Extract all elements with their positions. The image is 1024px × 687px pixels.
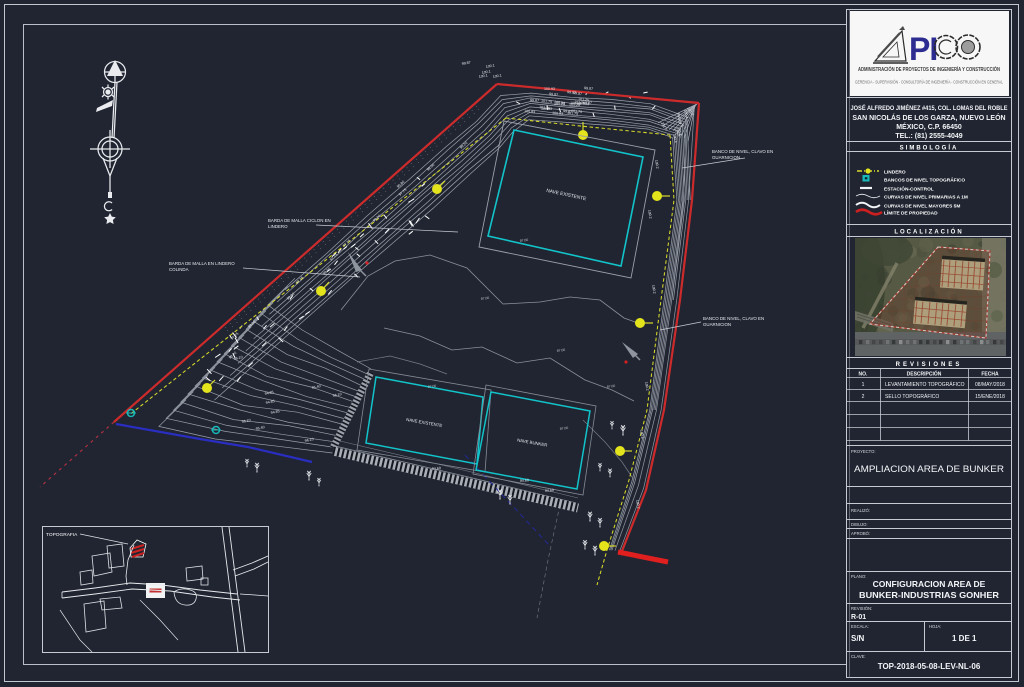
svg-text:COLINDA: COLINDA — [169, 267, 189, 272]
svg-text:CLAVE:: CLAVE: — [851, 654, 866, 659]
svg-text:MÉXICO, C.P. 66450: MÉXICO, C.P. 66450 — [896, 122, 962, 131]
svg-text:GERENCIA - SUPERVISIÓN - CONSU: GERENCIA - SUPERVISIÓN - CONSULTORÍA DE … — [855, 80, 1004, 85]
svg-text:BANCO DE NIVEL, CLAVO EN: BANCO DE NIVEL, CLAVO EN — [712, 149, 773, 154]
svg-text:1 DE 1: 1 DE 1 — [952, 634, 977, 643]
svg-text:AMPLIACION AREA DE BUNKER: AMPLIACION AREA DE BUNKER — [854, 464, 1004, 475]
svg-text:GUARNICION: GUARNICION — [703, 322, 731, 327]
svg-text:JOSÉ ALFREDO JIMÉNEZ #415, COL: JOSÉ ALFREDO JIMÉNEZ #415, COL. LOMAS DE… — [851, 103, 1008, 112]
svg-text:PI: PI — [909, 31, 937, 67]
svg-text:SIMBOLOGÍA: SIMBOLOGÍA — [900, 144, 959, 152]
svg-text:S/N: S/N — [851, 634, 865, 643]
svg-text:CURVAS DE NIVEL MAYORES 5M: CURVAS DE NIVEL MAYORES 5M — [884, 204, 960, 210]
svg-text:100.93: 100.93 — [544, 87, 555, 91]
svg-text:REVISIONES: REVISIONES — [896, 362, 963, 368]
svg-text:94.60: 94.60 — [432, 466, 441, 471]
svg-text:ADMINISTRACIÓN DE PROYECTOS DE: ADMINISTRACIÓN DE PROYECTOS DE INGENIERÍ… — [858, 65, 1000, 73]
svg-text:BARDA DE MALLA EN LINDERO: BARDA DE MALLA EN LINDERO — [169, 261, 235, 266]
svg-text:R-01: R-01 — [851, 614, 866, 621]
svg-text:LINDERO: LINDERO — [884, 170, 906, 176]
svg-text:TOP-2018-05-08-LEV-NL-06: TOP-2018-05-08-LEV-NL-06 — [878, 662, 981, 671]
svg-text:BANCO DE NIVEL, CLAVO EN: BANCO DE NIVEL, CLAVO EN — [703, 316, 764, 321]
svg-text:94.60: 94.60 — [520, 478, 529, 483]
svg-text:101.25: 101.25 — [554, 102, 565, 106]
svg-text:REALIZÓ:: REALIZÓ: — [851, 508, 870, 513]
svg-text:ESCALA:: ESCALA: — [851, 624, 869, 629]
svg-text:100.93: 100.93 — [541, 107, 552, 111]
svg-text:CONFIGURACION AREA DE: CONFIGURACION AREA DE — [873, 579, 986, 589]
svg-text:BUNKER-INDUSTRIAS GONHER: BUNKER-INDUSTRIAS GONHER — [859, 590, 999, 600]
svg-text:99.87: 99.87 — [530, 98, 539, 103]
svg-text:15/ENE/2018: 15/ENE/2018 — [975, 394, 1005, 400]
svg-text:NO.: NO. — [859, 372, 869, 378]
svg-text:REVISIÓN:: REVISIÓN: — [851, 606, 872, 611]
svg-text:FECHA: FECHA — [981, 372, 999, 378]
svg-text:CURVAS DE NIVEL PRIMARIAS A 1M: CURVAS DE NIVEL PRIMARIAS A 1M — [884, 195, 968, 201]
svg-text:TEL.: (81) 2555-4049: TEL.: (81) 2555-4049 — [895, 133, 962, 140]
svg-text:DESCRIPCIÓN: DESCRIPCIÓN — [907, 370, 942, 378]
svg-text:LINDERO: LINDERO — [268, 224, 288, 229]
svg-text:LOCALIZACIÓN: LOCALIZACIÓN — [894, 228, 963, 236]
svg-text:BARDA DE MALLA CICLON EN: BARDA DE MALLA CICLON EN — [268, 218, 331, 223]
svg-text:HOJA:: HOJA: — [929, 624, 941, 629]
svg-text:DIBUJO:: DIBUJO: — [851, 522, 868, 527]
svg-text:TOPOGRAFIA: TOPOGRAFIA — [46, 532, 78, 538]
svg-text:APROBÓ:: APROBÓ: — [851, 531, 870, 536]
svg-text:PLANO:: PLANO: — [851, 574, 866, 579]
svg-text:94.60: 94.60 — [545, 488, 554, 493]
svg-text:GUARNICION: GUARNICION — [712, 155, 740, 160]
svg-text:SAN NICOLÁS DE LOS GARZA, NUEV: SAN NICOLÁS DE LOS GARZA, NUEVO LEÓN — [852, 113, 1005, 122]
svg-text:LEVANTAMIENTO TOPOGRÁFICO: LEVANTAMIENTO TOPOGRÁFICO — [885, 381, 965, 388]
svg-text:08/MAY/2018: 08/MAY/2018 — [975, 382, 1005, 388]
svg-text:PROYECTO:: PROYECTO: — [851, 449, 876, 454]
svg-text:BANCOS DE NIVEL TOPOGRÁFICO: BANCOS DE NIVEL TOPOGRÁFICO — [884, 177, 965, 184]
svg-text:1: 1 — [862, 382, 865, 388]
svg-text:2: 2 — [862, 394, 865, 400]
svg-text:SELLO TOPOGRÁFICO: SELLO TOPOGRÁFICO — [885, 393, 939, 400]
